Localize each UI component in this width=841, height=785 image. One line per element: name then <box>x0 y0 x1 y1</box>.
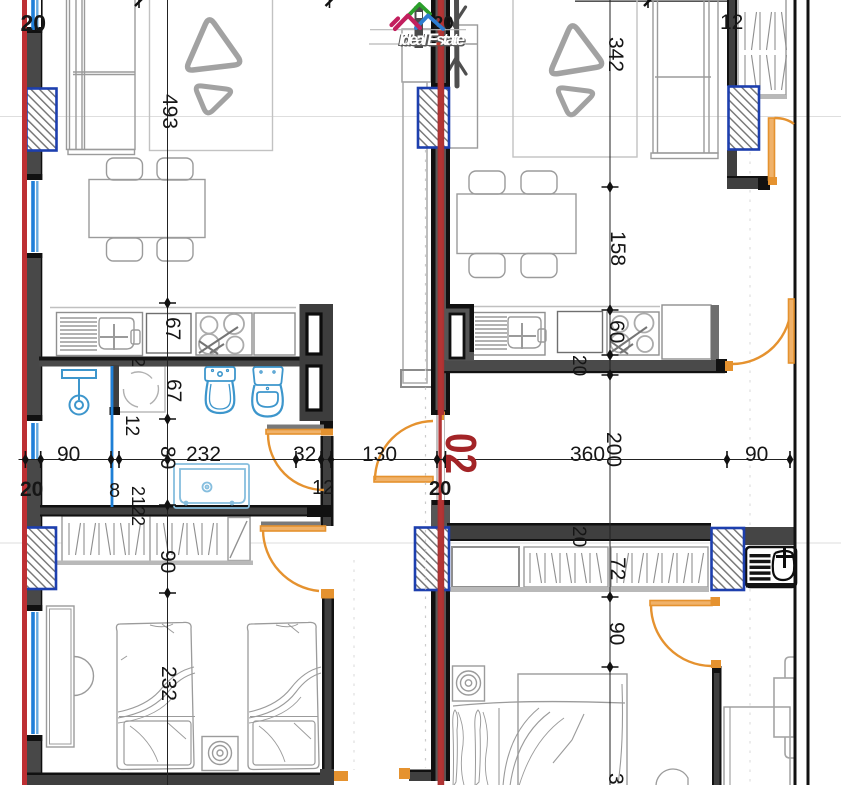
svg-text:60: 60 <box>605 320 628 343</box>
svg-text:130: 130 <box>362 443 397 466</box>
svg-text:232: 232 <box>157 666 180 701</box>
svg-text:2122: 2122 <box>128 486 148 526</box>
svg-text:12: 12 <box>121 415 142 436</box>
svg-text:72: 72 <box>606 557 629 580</box>
svg-text:232: 232 <box>186 443 221 466</box>
svg-text:200: 200 <box>602 432 625 467</box>
svg-text:80: 80 <box>156 446 179 469</box>
svg-text:90: 90 <box>745 443 768 466</box>
svg-text:32: 32 <box>293 443 316 466</box>
svg-text:20: 20 <box>20 478 43 501</box>
svg-text:8: 8 <box>109 480 120 502</box>
svg-text:3: 3 <box>604 773 627 785</box>
svg-text:20: 20 <box>429 478 451 500</box>
svg-text:90: 90 <box>156 550 179 573</box>
svg-text:20: 20 <box>568 526 589 547</box>
svg-text:90: 90 <box>605 622 628 645</box>
svg-text:12: 12 <box>312 477 334 499</box>
svg-text:90: 90 <box>57 443 80 466</box>
svg-text:493: 493 <box>158 94 181 129</box>
svg-text:20: 20 <box>568 355 589 376</box>
svg-text:12: 12 <box>720 11 743 34</box>
svg-text:2: 2 <box>128 357 148 367</box>
svg-text:67: 67 <box>161 317 184 340</box>
svg-text:Ideal Estate: Ideal Estate <box>399 31 465 49</box>
svg-text:158: 158 <box>606 231 629 266</box>
svg-text:20: 20 <box>21 10 47 36</box>
svg-text:360: 360 <box>570 443 605 466</box>
svg-text:02: 02 <box>436 433 485 474</box>
svg-text:342: 342 <box>604 37 627 72</box>
svg-text:67: 67 <box>162 379 185 402</box>
